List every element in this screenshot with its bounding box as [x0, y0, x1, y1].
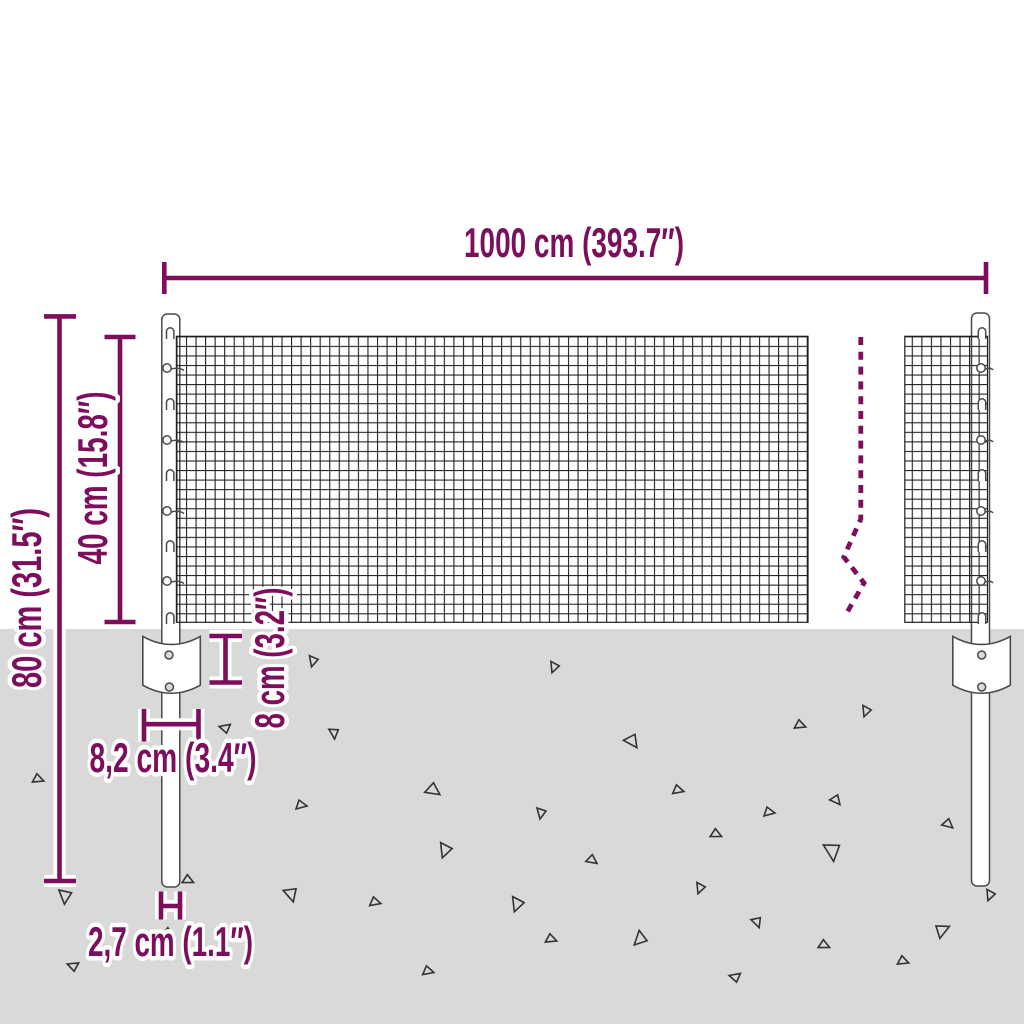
svg-text:2,7 cm (1.1″): 2,7 cm (1.1″) — [88, 918, 253, 965]
svg-text:8,2 cm (3.4″): 8,2 cm (3.4″) — [90, 734, 257, 781]
svg-text:40 cm (15.8″): 40 cm (15.8″) — [69, 392, 116, 565]
svg-text:80 cm (31.5″): 80 cm (31.5″) — [3, 508, 50, 688]
svg-text:8 cm (3.2″): 8 cm (3.2″) — [246, 588, 293, 729]
svg-text:1000 cm (393.7″): 1000 cm (393.7″) — [464, 219, 684, 266]
